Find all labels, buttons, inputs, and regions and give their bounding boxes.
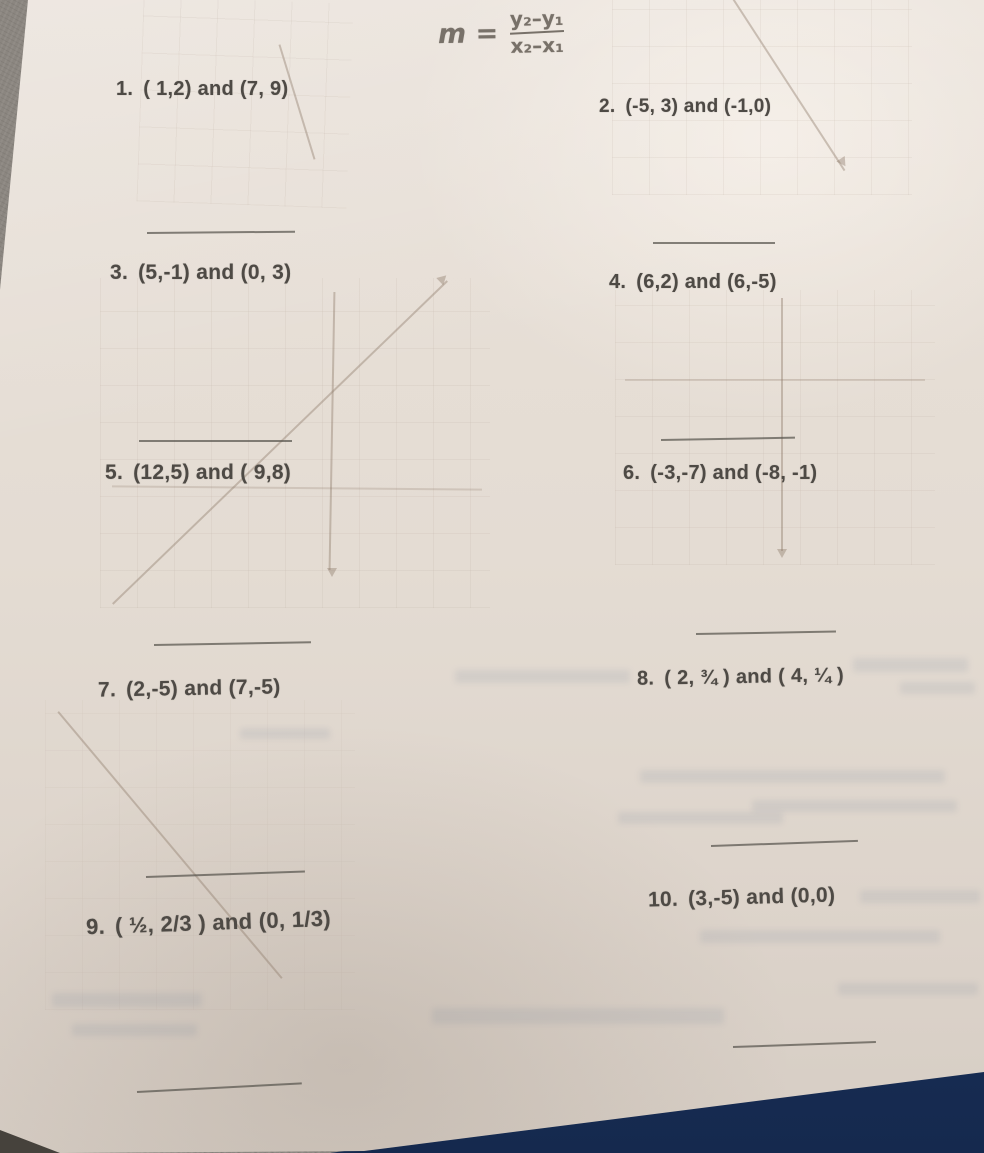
problem-9-number: 9. [86, 914, 106, 940]
problem-2-number: 2. [599, 96, 615, 117]
formula-denominator: x₂–x₁ [510, 33, 564, 58]
bleedthrough-grid-top-left [136, 0, 353, 209]
problem-10-points: (3,-5) and (0,0) [688, 884, 836, 911]
answer-blank-9 [137, 1082, 302, 1093]
problem-6-number: 6. [623, 462, 640, 484]
answer-blank-5 [154, 641, 311, 646]
ink-bleed-smudge [860, 890, 980, 903]
ink-bleed-smudge [432, 1008, 724, 1024]
ink-bleed-smudge [618, 812, 783, 824]
ink-bleed-smudge [455, 670, 630, 683]
answer-blank-2 [653, 242, 775, 244]
problem-10: 10.(3,-5) and (0,0) [648, 884, 836, 913]
problem-2: 2.(-5, 3) and (-1,0) [599, 96, 771, 118]
ink-bleed-smudge [52, 993, 202, 1007]
answer-blank-10 [733, 1041, 876, 1048]
problem-3-number: 3. [110, 261, 128, 284]
problem-6-points: (-3,-7) and (-8, -1) [650, 462, 817, 484]
problem-7-points: (2,-5) and (7,-5) [126, 675, 281, 701]
answer-blank-6 [696, 631, 836, 635]
bleedthrough-axis-arrow-mid-right [777, 549, 787, 558]
problem-4-number: 4. [609, 271, 626, 293]
problem-6: 6.(-3,-7) and (-8, -1) [623, 462, 817, 485]
worksheet-content: m = y₂–y₁ x₂–x₁ 1.( 1,2) and (7, 9) 2.(-… [0, 0, 984, 1153]
problem-3: 3.(5,-1) and (0, 3) [110, 261, 291, 285]
ink-bleed-smudge [640, 770, 945, 783]
problem-8-points: ( 2, ¾ ) and ( 4, ¼ ) [664, 664, 844, 689]
problem-5-number: 5. [105, 461, 123, 484]
problem-7: 7.(2,-5) and (7,-5) [98, 675, 281, 702]
problem-5: 5.(12,5) and ( 9,8) [105, 461, 291, 485]
ink-bleed-smudge [72, 1024, 197, 1036]
answer-blank-3 [139, 440, 292, 442]
problem-1-number: 1. [116, 78, 133, 100]
bleedthrough-x-axis-mid-right [625, 379, 925, 381]
problem-8-number: 8. [637, 668, 655, 690]
formula-lhs: m = [438, 18, 499, 50]
problem-8: 8.( 2, ¾ ) and ( 4, ¼ ) [637, 664, 844, 691]
problem-10-number: 10. [648, 888, 679, 912]
problem-4: 4.(6,2) and (6,-5) [609, 271, 777, 294]
bleedthrough-grid-bottom-left [45, 700, 355, 1010]
answer-blank-1 [147, 231, 295, 234]
bleedthrough-axis-arrow-mid-left [327, 568, 337, 577]
formula-fraction: y₂–y₁ x₂–x₁ [510, 7, 564, 58]
problem-2-points: (-5, 3) and (-1,0) [625, 96, 771, 117]
ink-bleed-smudge [240, 728, 330, 739]
problem-5-points: (12,5) and ( 9,8) [133, 461, 291, 484]
problem-1: 1.( 1,2) and (7, 9) [116, 78, 288, 101]
bleedthrough-y-axis-mid-right [781, 298, 783, 551]
problem-1-points: ( 1,2) and (7, 9) [143, 78, 288, 100]
ink-bleed-smudge [700, 930, 940, 943]
bleedthrough-grid-mid-right [615, 290, 935, 565]
ink-bleed-smudge [900, 682, 975, 694]
formula-numerator: y₂–y₁ [510, 6, 564, 31]
answer-blank-8 [711, 840, 858, 847]
ink-bleed-smudge [752, 800, 957, 812]
problem-7-number: 7. [98, 678, 117, 701]
ink-bleed-smudge [853, 658, 968, 672]
slope-formula: m = y₂–y₁ x₂–x₁ [438, 7, 565, 59]
ink-bleed-smudge [838, 983, 978, 995]
problem-4-points: (6,2) and (6,-5) [636, 271, 776, 293]
problem-3-points: (5,-1) and (0, 3) [138, 261, 291, 284]
